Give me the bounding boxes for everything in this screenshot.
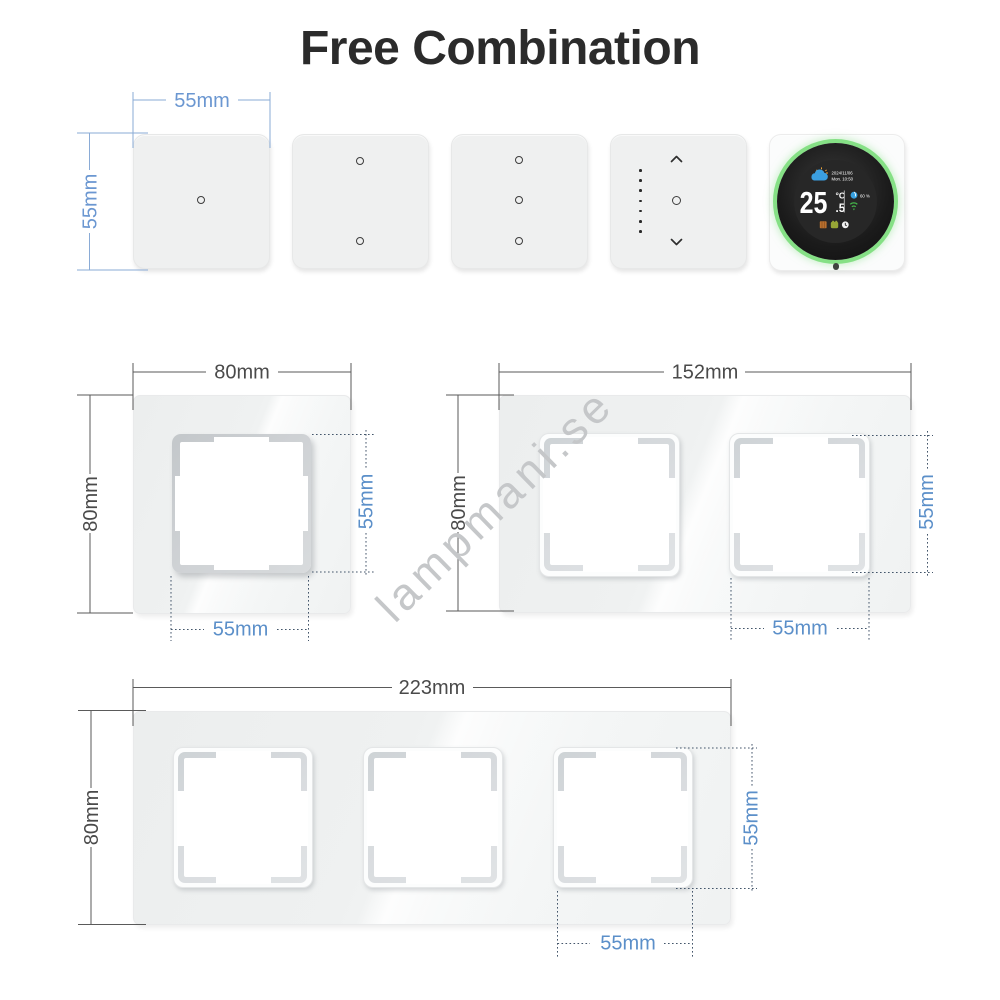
svg-text:55mm: 55mm [80, 174, 102, 230]
svg-text:80mm: 80mm [81, 790, 103, 846]
svg-text:55mm: 55mm [741, 790, 763, 846]
svg-text:55mm: 55mm [174, 90, 230, 112]
svg-text:55mm: 55mm [600, 933, 656, 955]
svg-text:55mm: 55mm [356, 474, 378, 530]
svg-text:223mm: 223mm [399, 677, 466, 699]
svg-text:152mm: 152mm [672, 362, 739, 384]
svg-text:55mm: 55mm [213, 619, 269, 641]
svg-text:55mm: 55mm [916, 474, 938, 530]
svg-text:55mm: 55mm [772, 618, 828, 640]
svg-text:80mm: 80mm [80, 476, 102, 532]
svg-text:80mm: 80mm [214, 362, 270, 384]
